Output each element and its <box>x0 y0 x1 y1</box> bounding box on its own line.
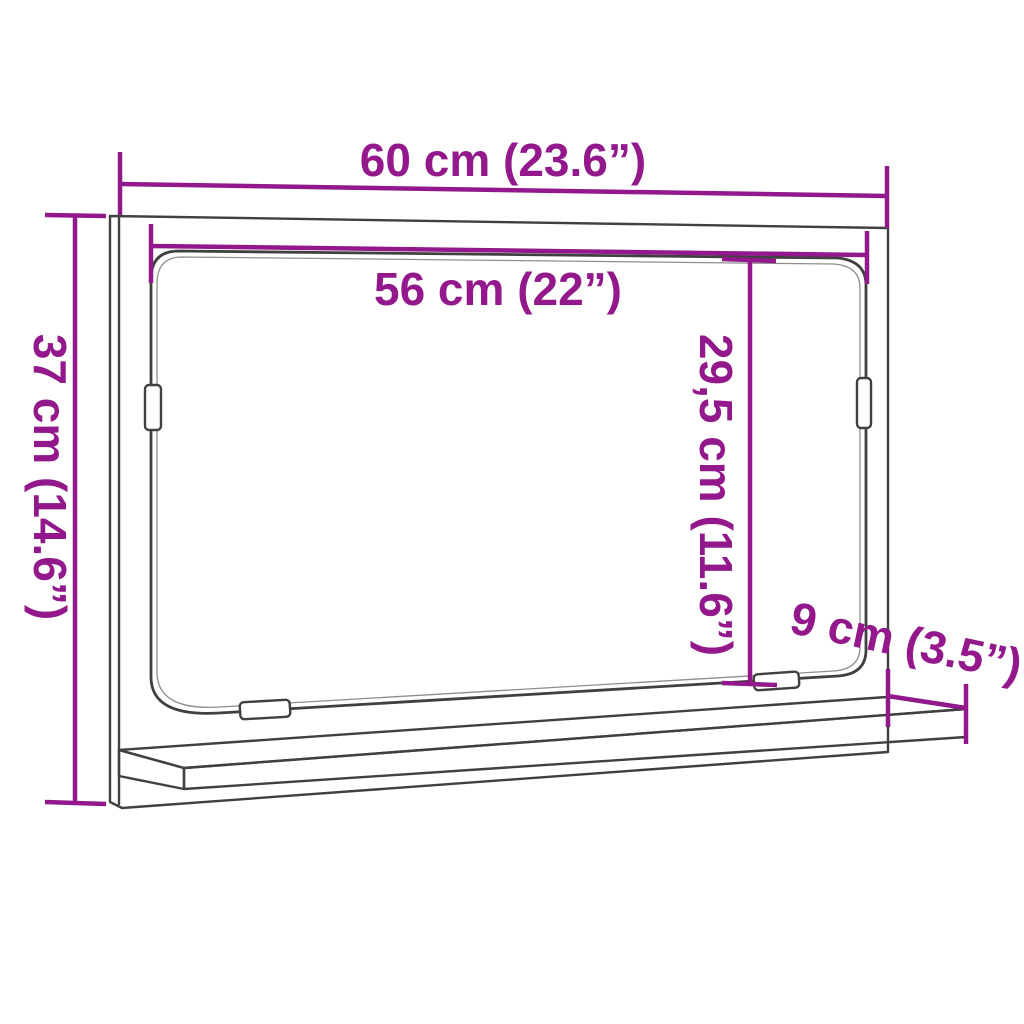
shelf-left-end-face <box>119 750 184 789</box>
clip-left <box>145 385 161 430</box>
shelf-front-face <box>184 709 966 789</box>
dimension-width-inner: 56 cm (22”) <box>151 224 867 315</box>
dim-295-label: 29,5 cm (11.6”) <box>690 334 742 656</box>
dimension-height-left: 37 cm (14.6”) <box>24 215 106 804</box>
mirror-clips <box>145 378 871 719</box>
dim-37-tick-bottom <box>45 802 106 804</box>
dim-295-tick-top <box>722 259 776 261</box>
clip-bottom-right <box>753 671 799 690</box>
mirror <box>151 251 866 713</box>
mirror-outline <box>151 251 866 713</box>
dim-295-tick-bottom <box>722 683 777 685</box>
diagram-canvas: 60 cm (23.6”) 56 cm (22”) 37 cm (14.6”) … <box>0 0 1024 1024</box>
dim-37-tick-top <box>45 215 106 216</box>
dimension-width-top: 60 cm (23.6”) <box>120 134 887 228</box>
dimension-diagram: 60 cm (23.6”) 56 cm (22”) 37 cm (14.6”) … <box>0 0 1024 1024</box>
dimension-shelf-depth: 9 cm (3.5”) <box>786 591 1024 744</box>
clip-bottom-left <box>240 700 291 720</box>
dim-9-line <box>888 696 966 708</box>
dim-60-label: 60 cm (23.6”) <box>360 134 646 186</box>
mirror-bevel-line <box>157 257 860 707</box>
dim-56-label: 56 cm (22”) <box>374 263 622 315</box>
clip-right <box>857 378 871 428</box>
dim-37-label: 37 cm (14.6”) <box>24 334 76 620</box>
dimension-height-inner: 29,5 cm (11.6”) <box>690 259 777 685</box>
